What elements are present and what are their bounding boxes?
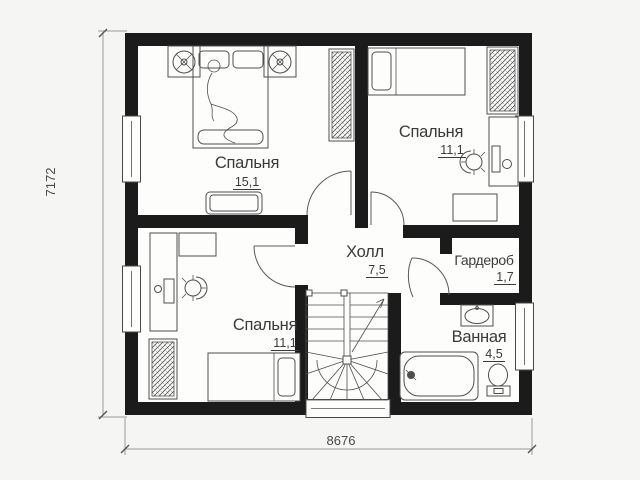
wall-wardrobe-bottom — [440, 293, 519, 305]
stair-post-center — [341, 290, 347, 296]
stair-newel-post — [343, 356, 351, 364]
desk-with-monitor — [150, 233, 177, 331]
area-hall: 7,5 — [368, 263, 385, 277]
wall-wardrobe-left-stub — [440, 238, 452, 254]
floor-plan-drawing: Спальня 15,1 Спальня 11,1 Спальня 11,1 Х… — [0, 0, 640, 480]
area-bedroom-bl: 11,1 — [273, 336, 296, 350]
dimension-bottom-value: 8676 — [327, 433, 356, 448]
area-bedroom-tr: 11,1 — [440, 143, 463, 157]
area-bedroom-tl: 15,1 — [235, 175, 259, 189]
stair-post-left — [306, 290, 312, 296]
label-bedroom-tr: Спальня — [399, 123, 463, 141]
floor-plan-canvas: Спальня 15,1 Спальня 11,1 Спальня 11,1 Х… — [0, 0, 640, 480]
area-wardrobe: 1,7 — [496, 270, 513, 284]
label-wardrobe: Гардероб — [454, 252, 513, 268]
wardrobe-hatched — [487, 47, 518, 114]
window-bathroom — [516, 303, 534, 370]
double-bed — [193, 46, 268, 148]
wardrobe-hatched — [329, 49, 354, 141]
desk-with-monitor — [489, 117, 518, 186]
wall-top — [125, 33, 532, 46]
single-bed — [208, 353, 300, 401]
wall-stairs-right — [388, 293, 401, 402]
label-hall: Холл — [346, 243, 384, 261]
wall-left — [125, 33, 138, 415]
wall-center-stub — [355, 46, 368, 228]
window-stairs — [306, 400, 390, 418]
wardrobe-hatched — [149, 339, 177, 399]
label-bathroom: Ванная — [452, 328, 507, 346]
dimension-bottom: 8676 — [121, 418, 536, 455]
window-bedroom-bl — [123, 266, 141, 332]
area-bathroom: 4,5 — [485, 347, 502, 361]
label-bedroom-tl: Спальня — [215, 154, 279, 172]
dimension-left-value: 7172 — [43, 168, 58, 197]
window-bedroom-tl — [123, 116, 141, 182]
single-bed — [368, 48, 465, 95]
wall-bedroom-tl-bottom — [138, 215, 308, 228]
wall-bedroom-bl-stub — [295, 228, 308, 244]
dimension-left: 7172 — [43, 29, 127, 419]
bathtub — [400, 352, 478, 400]
label-bedroom-bl: Спальня — [233, 316, 297, 334]
wall-bedroom-tr-bottom — [403, 225, 519, 238]
